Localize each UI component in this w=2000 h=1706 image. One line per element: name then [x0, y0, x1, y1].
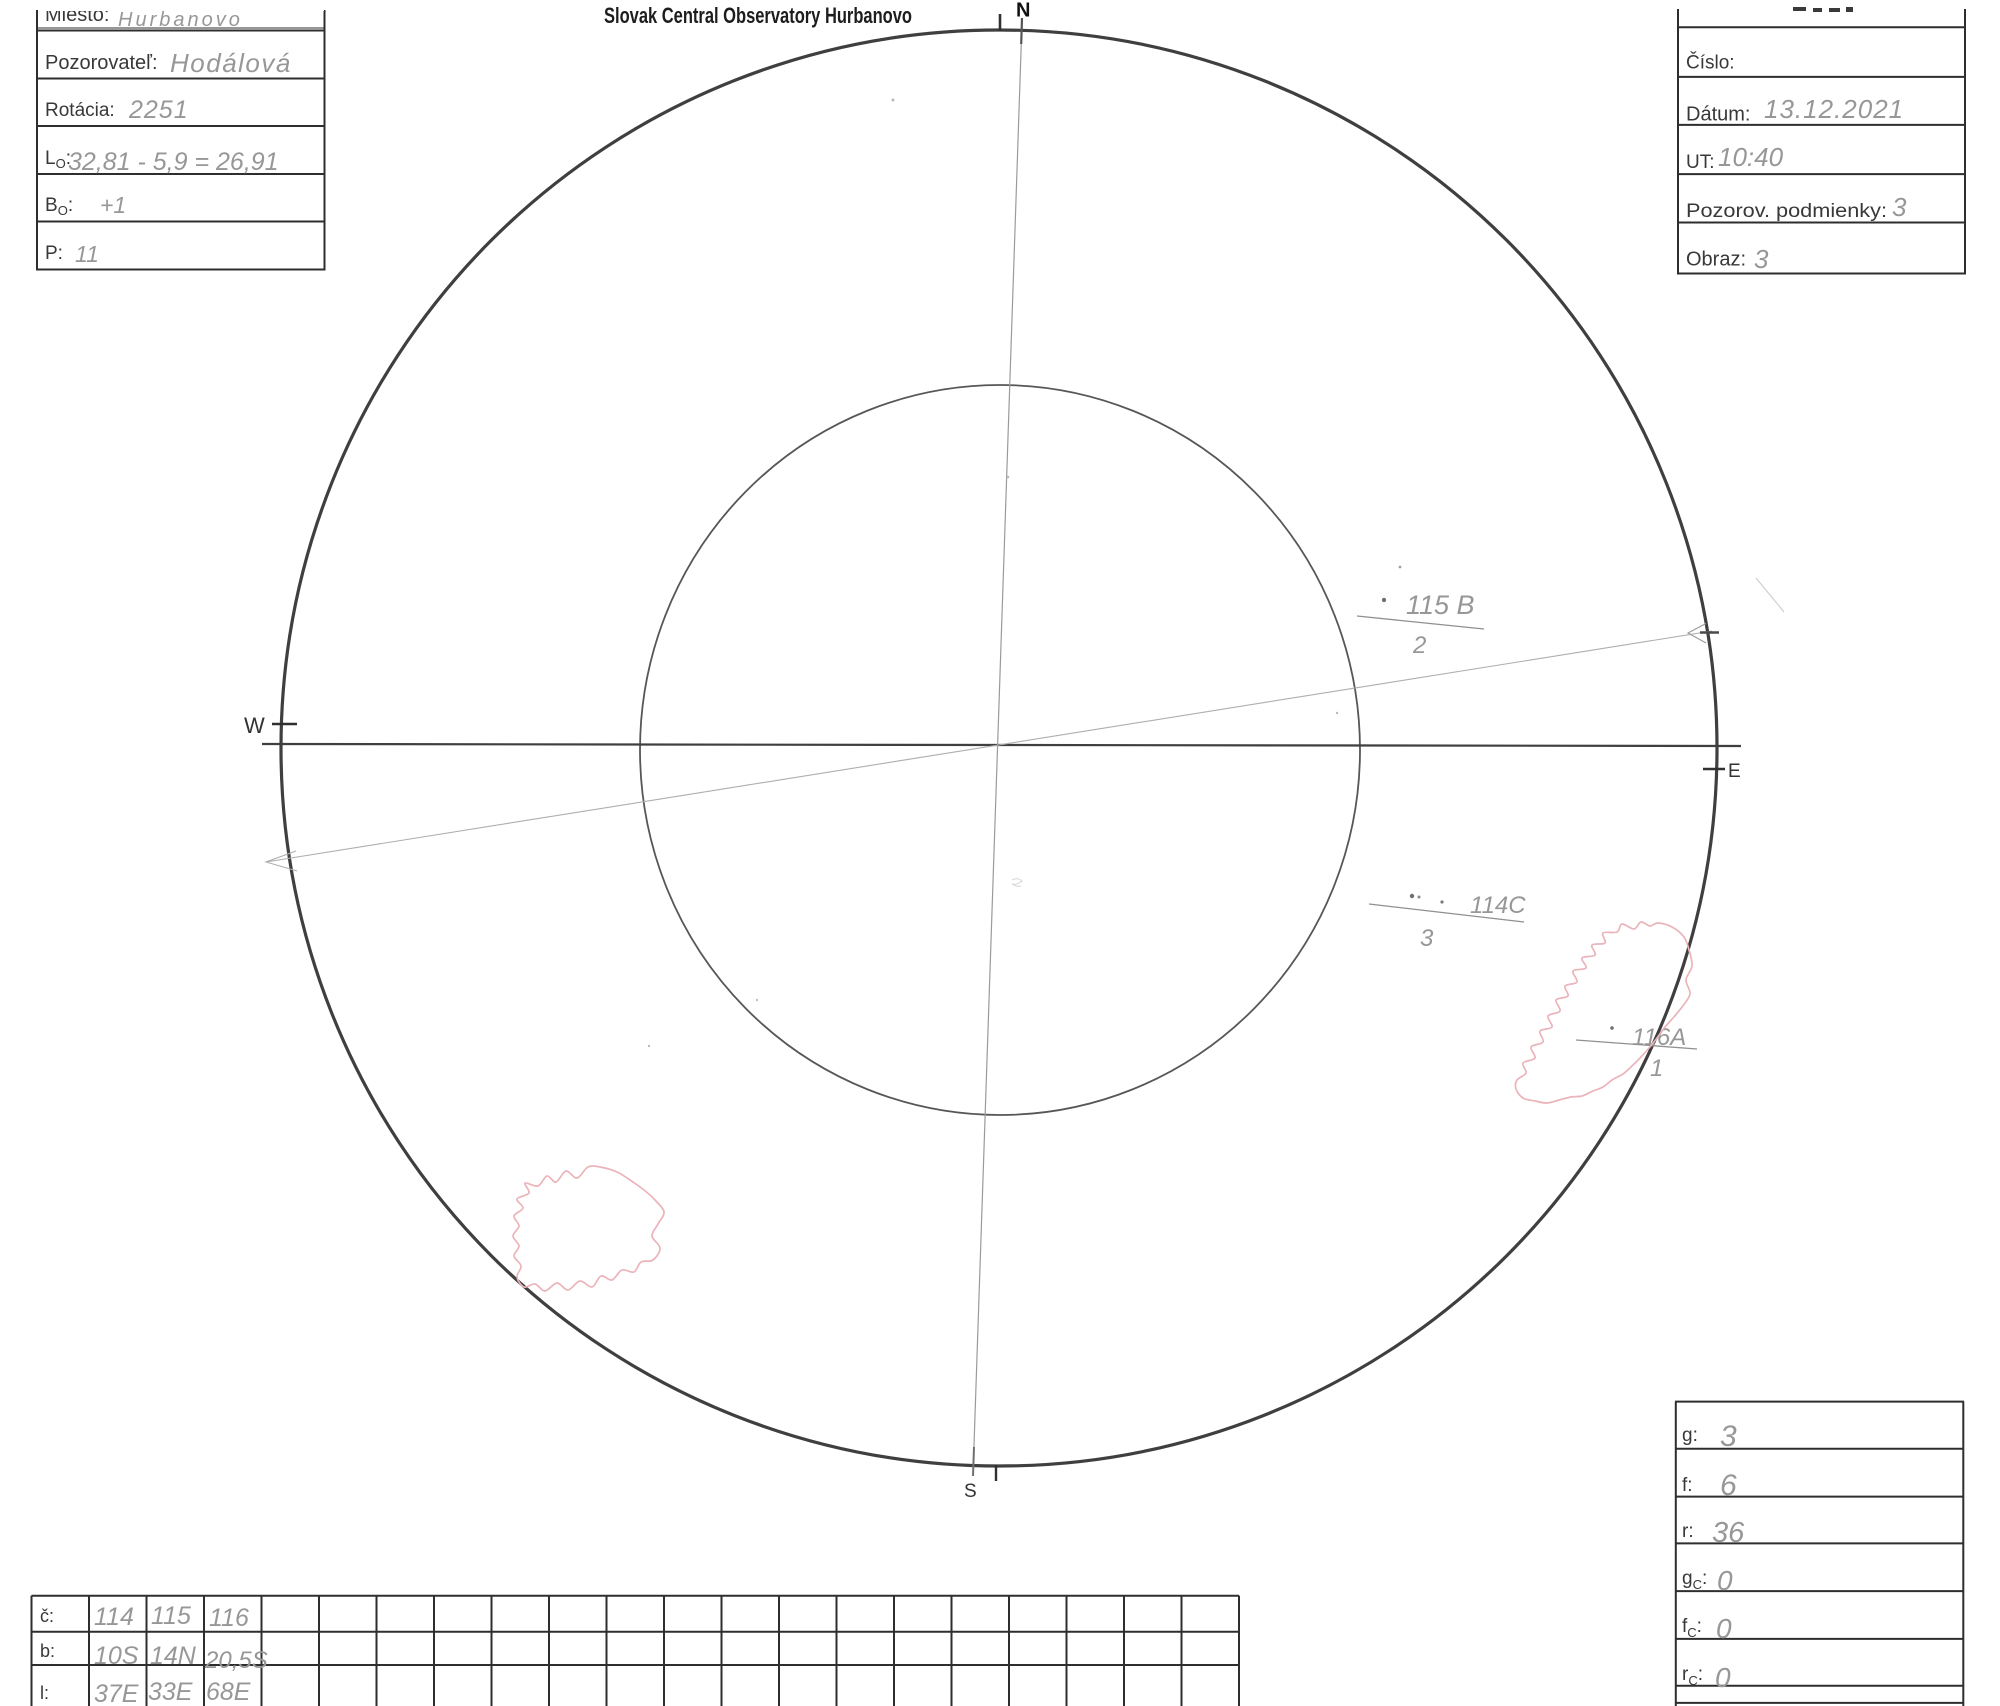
svg-text:14N: 14N	[150, 1642, 197, 1670]
svg-text:l:: l:	[40, 1683, 49, 1703]
svg-text:11: 11	[75, 241, 99, 267]
svg-text:116: 116	[209, 1604, 249, 1632]
svg-text:Hurbanovo: Hurbanovo	[118, 9, 243, 31]
svg-text:P:: P:	[45, 243, 63, 264]
svg-text:10:40: 10:40	[1718, 142, 1784, 172]
svg-text:Hodálová: Hodálová	[170, 48, 292, 78]
svg-text:2251: 2251	[128, 96, 189, 124]
svg-text:Pozorovateľ:: Pozorovateľ:	[45, 52, 158, 74]
svg-text:10S: 10S	[94, 1642, 139, 1670]
svg-text:UT:: UT:	[1686, 152, 1715, 173]
svg-text:20,5S: 20,5S	[204, 1647, 268, 1674]
svg-text:Dátum:: Dátum:	[1686, 104, 1750, 126]
svg-text:36: 36	[1712, 1517, 1745, 1549]
svg-text:115 B: 115 B	[1406, 590, 1475, 620]
svg-text:6: 6	[1720, 1469, 1737, 1502]
svg-text:Slovak Central Observatory Hur: Slovak Central Observatory Hurbanovo	[604, 3, 912, 28]
svg-text:3: 3	[1754, 244, 1769, 274]
svg-text:33E: 33E	[148, 1678, 193, 1706]
svg-text:68E: 68E	[206, 1678, 251, 1706]
svg-text:3: 3	[1720, 1420, 1737, 1453]
svg-text:N: N	[1016, 0, 1030, 22]
svg-text:0: 0	[1717, 1565, 1733, 1596]
svg-text:1: 1	[1650, 1055, 1663, 1082]
svg-text:Číslo:: Číslo:	[1686, 52, 1735, 74]
svg-text:3: 3	[1892, 192, 1907, 222]
svg-text:+1: +1	[100, 192, 126, 218]
svg-text:0: 0	[1716, 1613, 1732, 1644]
svg-text:3: 3	[1420, 925, 1434, 952]
svg-text:13.12.2021: 13.12.2021	[1764, 94, 1904, 124]
svg-text:Obraz:: Obraz:	[1686, 249, 1746, 271]
svg-text:r:: r:	[1682, 1521, 1694, 1542]
svg-text:115: 115	[151, 1602, 191, 1630]
svg-text:114C: 114C	[1470, 892, 1526, 919]
svg-text:S: S	[964, 1481, 977, 1502]
svg-text:37E: 37E	[94, 1680, 139, 1706]
svg-text:E: E	[1728, 761, 1741, 782]
svg-text:2: 2	[1412, 632, 1426, 659]
svg-text:114: 114	[94, 1603, 134, 1631]
svg-text:f:: f:	[1682, 1475, 1693, 1496]
svg-text:0: 0	[1715, 1662, 1731, 1693]
svg-text:32,81 - 5,9 = 26,91: 32,81 - 5,9 = 26,91	[68, 148, 279, 176]
svg-text:č:: č:	[40, 1606, 54, 1626]
svg-text:g:: g:	[1682, 1425, 1698, 1446]
svg-text:Rotácia:: Rotácia:	[45, 100, 115, 121]
svg-text:Pozorov. podmienky:: Pozorov. podmienky:	[1686, 201, 1887, 222]
svg-text:b:: b:	[40, 1641, 55, 1661]
svg-text:W: W	[244, 713, 265, 738]
